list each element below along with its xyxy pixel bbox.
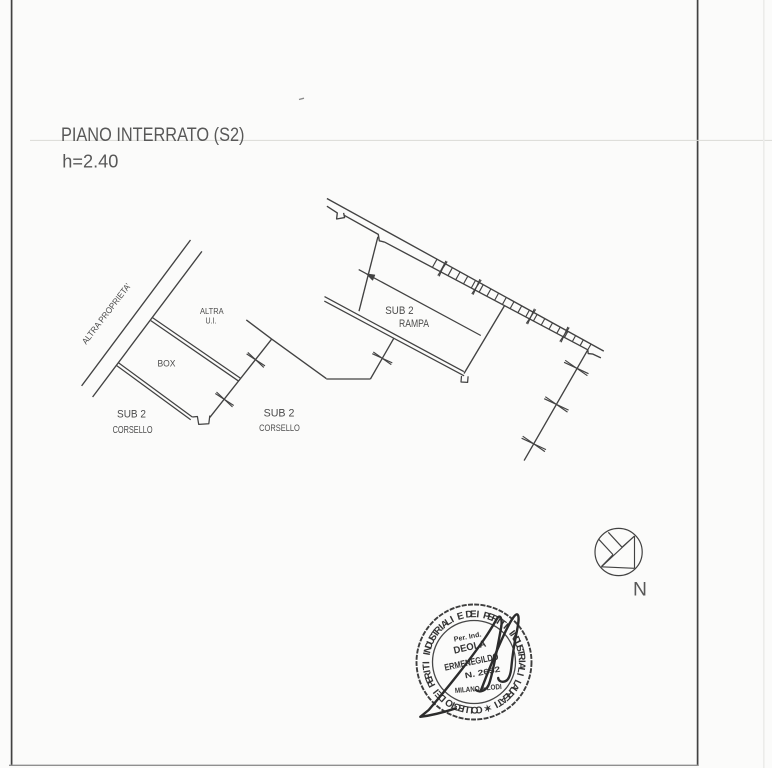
svg-text:SUB 2: SUB 2 xyxy=(264,408,295,420)
svg-text:U.I.: U.I. xyxy=(205,315,216,325)
svg-text:BOX: BOX xyxy=(158,359,176,369)
svg-text:I: I xyxy=(421,661,432,664)
svg-text:CORSELLO: CORSELLO xyxy=(113,425,153,436)
svg-text:N: N xyxy=(633,579,647,600)
svg-text:PIANO INTERRATO (S2): PIANO INTERRATO (S2) xyxy=(61,125,245,146)
svg-text:RAMPA: RAMPA xyxy=(399,318,430,330)
svg-text:CORSELLO: CORSELLO xyxy=(259,423,300,434)
svg-text:h=2.40: h=2.40 xyxy=(62,150,118,171)
svg-text:SUB 2: SUB 2 xyxy=(117,409,146,421)
svg-text:SUB 2: SUB 2 xyxy=(385,305,413,317)
